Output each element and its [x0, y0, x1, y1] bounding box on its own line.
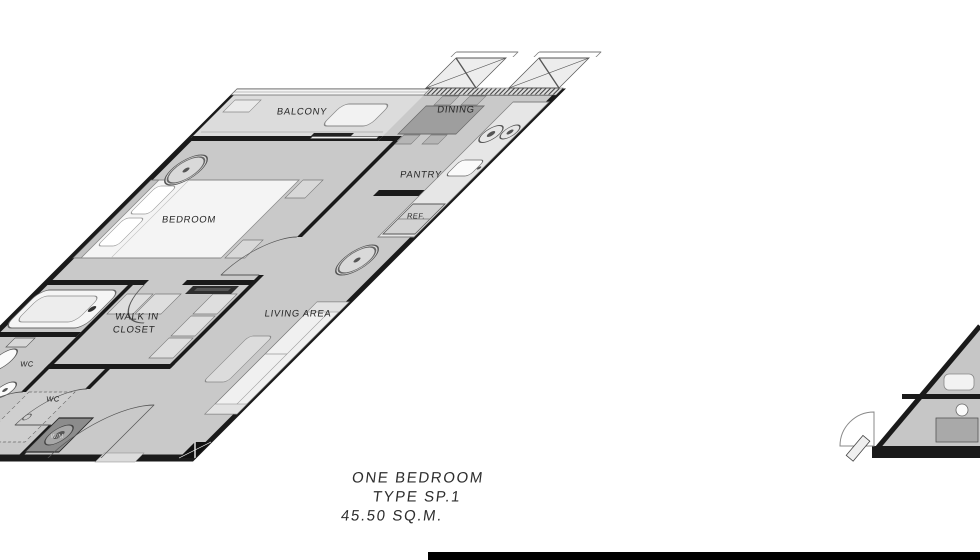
washbasin-icon: [956, 404, 968, 416]
closet-cabinet: [185, 286, 239, 294]
caption-area-size: 45.50 SQ.M.: [340, 508, 444, 525]
ac-condenser-icon: [420, 52, 601, 88]
floor-plan-page: BALCONY DINING PANTRY REF. BEDROOM WALK …: [0, 0, 980, 560]
footer-bar: [428, 552, 980, 560]
caption-unit-type: ONE BEDROOM: [351, 470, 485, 487]
unit-floor-plan: [0, 92, 559, 458]
neighbor-cabinet: [936, 418, 978, 442]
neighbor-bottom-wall: [872, 446, 980, 458]
neighbor-fixture: [944, 374, 974, 390]
caption-type-code: TYPE SP.1: [372, 489, 462, 506]
louver-vent: [424, 88, 563, 95]
neighbor-unit-fragment: [828, 322, 980, 470]
neighbor-wall: [902, 394, 980, 399]
floor-plan-drawing: [0, 92, 559, 458]
